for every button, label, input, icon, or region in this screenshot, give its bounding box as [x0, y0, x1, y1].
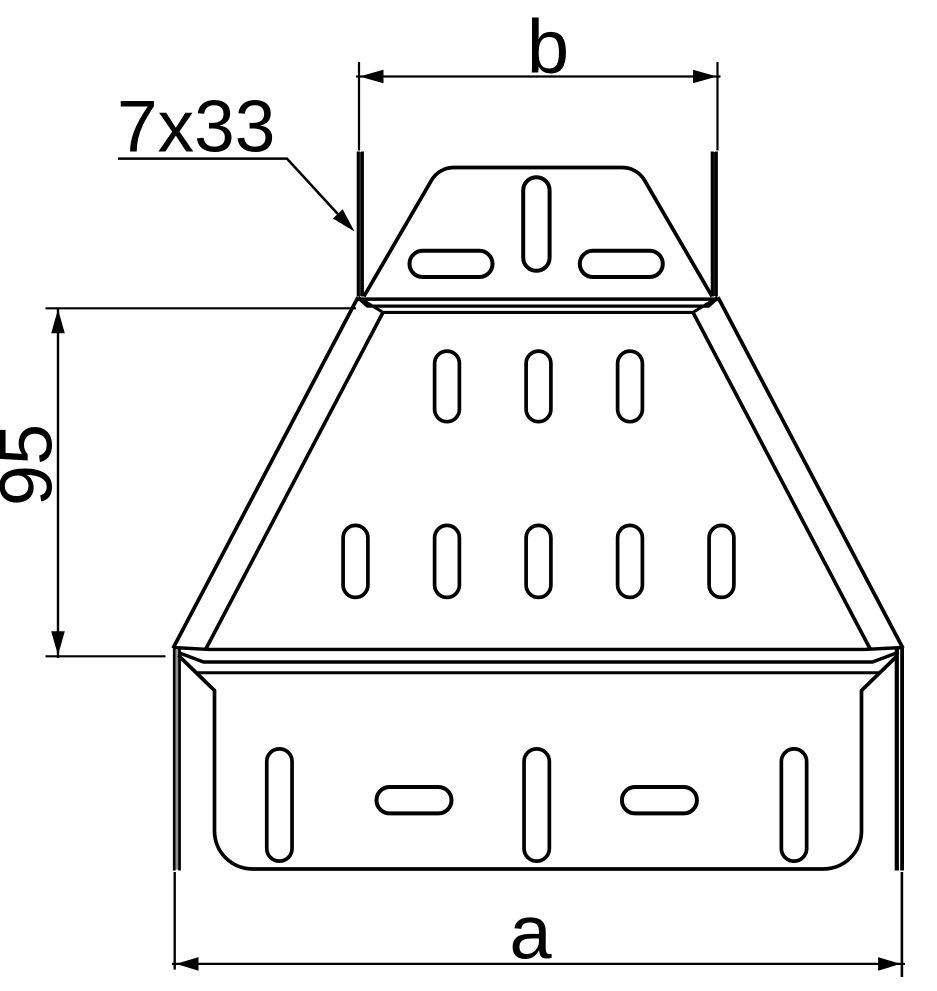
svg-text:7x33: 7x33	[117, 87, 275, 168]
svg-text:a: a	[509, 891, 552, 976]
svg-text:95: 95	[0, 424, 68, 506]
svg-text:b: b	[527, 5, 569, 90]
